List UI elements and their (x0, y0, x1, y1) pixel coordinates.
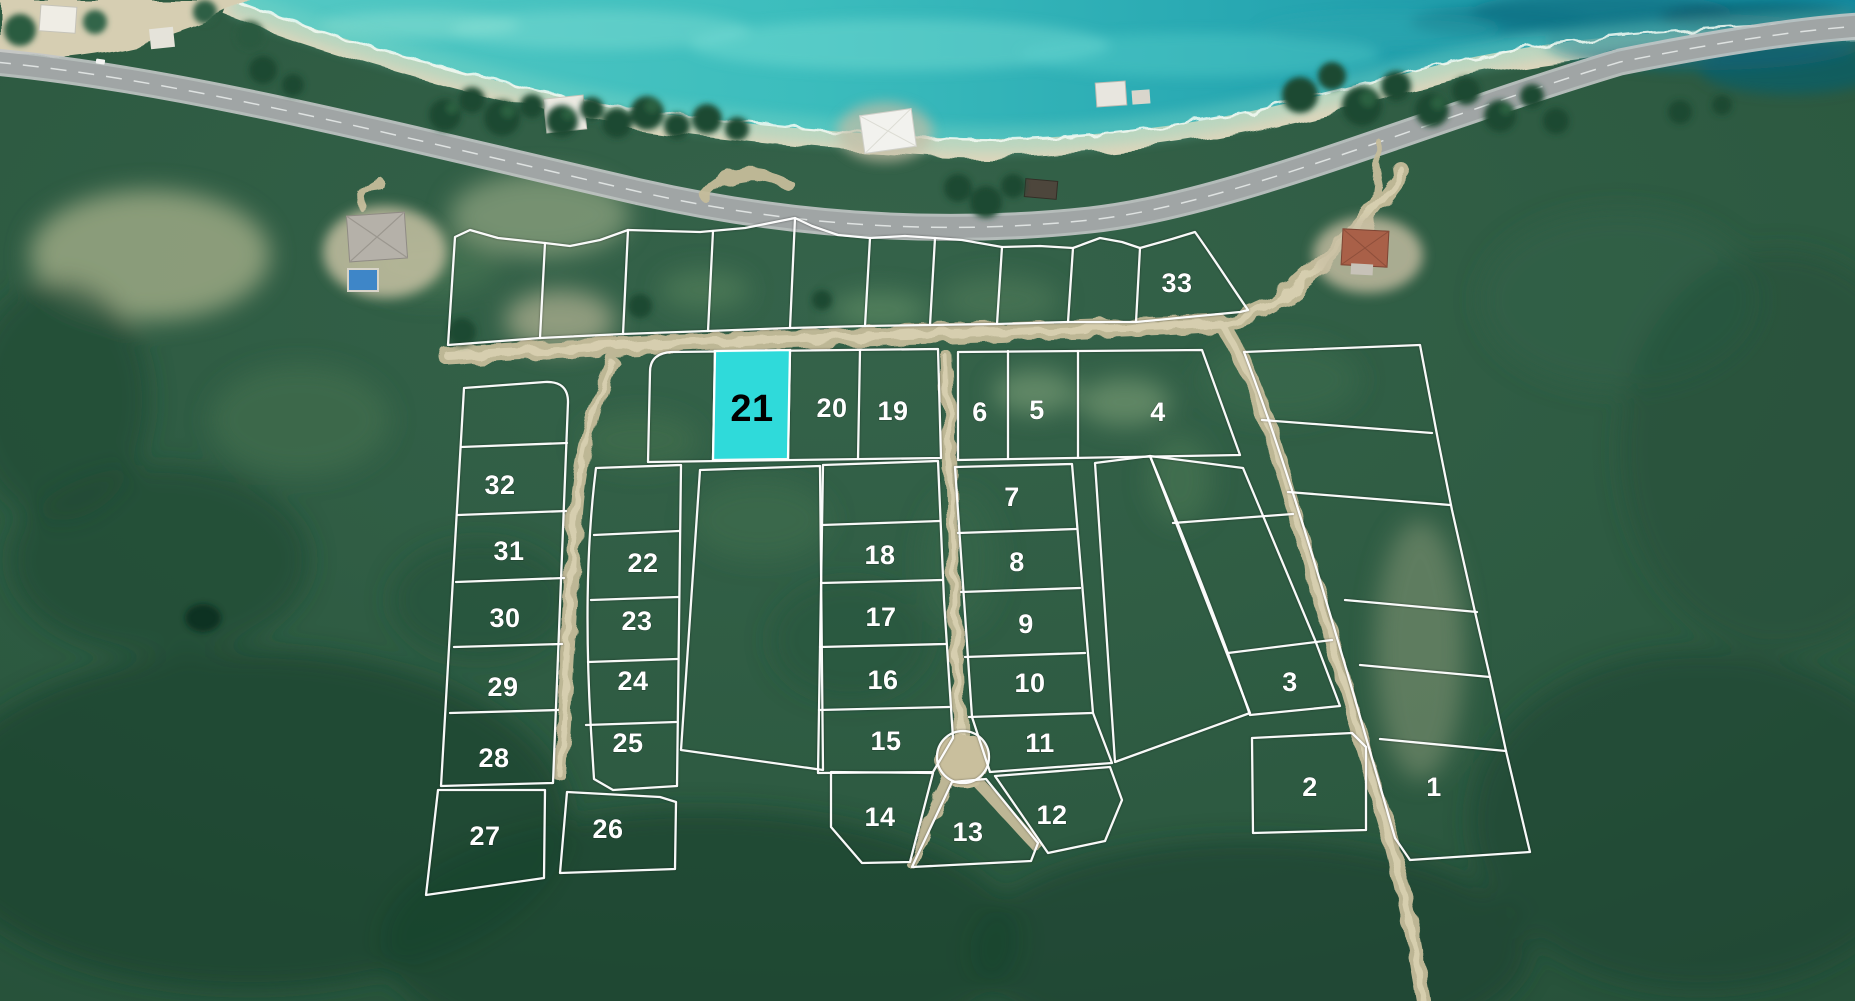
lot-label-12[interactable]: 12 (1036, 800, 1067, 830)
lot-label-19[interactable]: 19 (877, 396, 908, 426)
lot-label-27[interactable]: 27 (469, 821, 500, 851)
gray-roof-house (346, 212, 407, 262)
lot-label-22[interactable]: 22 (627, 548, 658, 578)
headland-building-2 (149, 27, 175, 49)
lot-label-26[interactable]: 26 (592, 814, 623, 844)
lot-label-28[interactable]: 28 (478, 743, 509, 773)
lot-label-10[interactable]: 10 (1014, 668, 1045, 698)
lot-label-21[interactable]: 21 (730, 388, 773, 430)
lot-label-33[interactable]: 33 (1161, 268, 1192, 298)
lot-label-25[interactable]: 25 (612, 728, 643, 758)
lot-label-14[interactable]: 14 (864, 802, 895, 832)
lot-label-9[interactable]: 9 (1018, 609, 1034, 639)
lot-label-1[interactable]: 1 (1426, 772, 1442, 802)
dark-shed (1024, 179, 1057, 200)
lot-label-11[interactable]: 11 (1025, 728, 1055, 758)
north-building-2 (1132, 89, 1151, 104)
lot-label-8[interactable]: 8 (1009, 547, 1025, 577)
lot-label-5[interactable]: 5 (1029, 395, 1045, 425)
headland-building (39, 5, 77, 33)
lot-label-24[interactable]: 24 (617, 666, 648, 696)
pond (185, 604, 221, 632)
lot-label-20[interactable]: 20 (816, 393, 847, 423)
lot-label-29[interactable]: 29 (487, 672, 518, 702)
lot-label-32[interactable]: 32 (484, 470, 515, 500)
lot-label-30[interactable]: 30 (489, 603, 520, 633)
lot-label-4[interactable]: 4 (1150, 397, 1166, 427)
lot-label-7[interactable]: 7 (1004, 482, 1020, 512)
white-pavilion (860, 109, 917, 154)
lot-label-13[interactable]: 13 (952, 817, 983, 847)
lot-label-18[interactable]: 18 (864, 540, 895, 570)
satellite-map: 1234567891011121314151617181920212223242… (0, 0, 1855, 1001)
swimming-pool (348, 269, 378, 291)
lot-label-16[interactable]: 16 (867, 665, 898, 695)
north-building (1095, 81, 1127, 107)
lot-label-6[interactable]: 6 (972, 397, 988, 427)
lot-label-17[interactable]: 17 (865, 602, 896, 632)
lot-label-2[interactable]: 2 (1302, 772, 1318, 802)
lot-label-15[interactable]: 15 (870, 726, 901, 756)
lot-label-31[interactable]: 31 (493, 536, 524, 566)
lot-label-3[interactable]: 3 (1282, 667, 1298, 697)
lot-label-23[interactable]: 23 (621, 606, 652, 636)
